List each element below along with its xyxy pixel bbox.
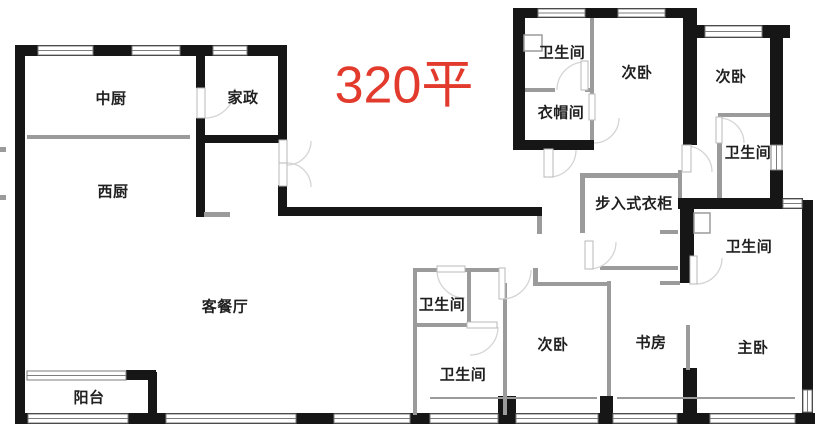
room-label-bedroom-bottom: 次卧 <box>537 334 568 355</box>
room-label-master-bedroom: 主卧 <box>737 337 768 358</box>
room-label-bath-mid-upper: 卫生间 <box>419 294 466 315</box>
room-label-bedroom-top-right: 次卧 <box>715 66 746 87</box>
room-label-cloakroom: 衣帽间 <box>538 102 585 123</box>
room-label-bedroom-top-left: 次卧 <box>621 62 652 83</box>
room-label-bath-top: 卫生间 <box>539 42 586 63</box>
room-label-western-kitchen: 西厨 <box>97 181 128 202</box>
room-label-living-dining: 客餐厅 <box>202 296 249 317</box>
room-label-balcony: 阳台 <box>73 387 104 408</box>
room-label-chinese-kitchen: 中厨 <box>95 88 126 109</box>
floorplan-page: 320平 中厨 家政 西厨 客餐厅 阳台 卫生间 次卧 衣帽间 次卧 卫生间 步… <box>0 0 831 431</box>
room-label-walkin-closet: 步入式衣柜 <box>595 193 673 214</box>
room-label-study: 书房 <box>635 332 666 353</box>
room-label-bath-mid-lower: 卫生间 <box>440 364 487 385</box>
room-label-bath-upper-right: 卫生间 <box>725 142 772 163</box>
room-label-housekeeping: 家政 <box>227 87 258 108</box>
area-title: 320平 <box>335 43 474 118</box>
room-label-bath-right: 卫生间 <box>726 236 773 257</box>
